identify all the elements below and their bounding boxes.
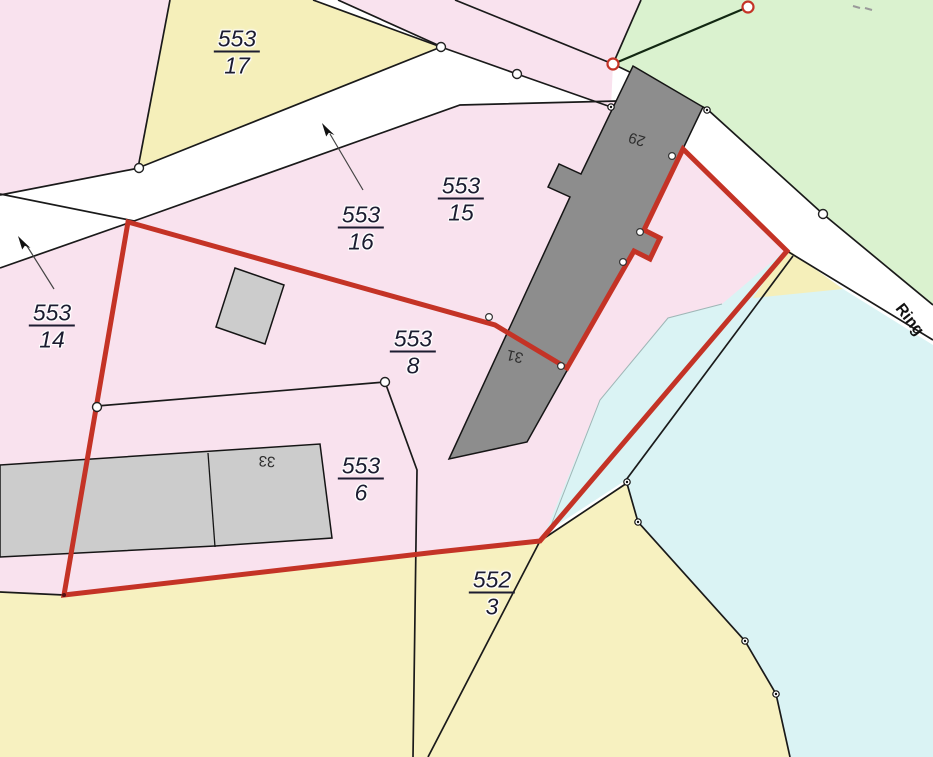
wall-point (620, 259, 627, 266)
parcel-label-553-14: 55314 (29, 301, 75, 352)
parcel-label-553-15: 55315 (438, 174, 484, 225)
parcel-label-552-3: 5523 (469, 568, 515, 619)
parcel-label-553-17-numerator: 553 (214, 27, 260, 53)
corner-point (62, 593, 66, 597)
road-inner-line (0, 194, 134, 221)
boundary-point-center (744, 640, 746, 642)
map-canvas[interactable] (0, 0, 933, 757)
parcel-label-553-6-numerator: 553 (338, 454, 384, 480)
control-point-red (743, 2, 754, 13)
parcel-label-553-16-numerator: 553 (338, 203, 384, 229)
survey-point (381, 378, 390, 387)
parcel-label-553-8-numerator: 553 (390, 327, 436, 353)
wall-point (486, 314, 493, 321)
survey-point (437, 43, 446, 52)
parcel-label-553-8: 5538 (390, 327, 436, 378)
parcel-label-553-15-numerator: 553 (438, 174, 484, 200)
parcel-label-553-17-denominator: 17 (214, 53, 260, 78)
boundary-point-center (775, 693, 777, 695)
map-viewport[interactable]: 55317553165531555314553855365523293133Ri… (0, 0, 933, 757)
parcel-label-553-14-numerator: 553 (29, 301, 75, 327)
parcel-label-553-14-denominator: 14 (29, 327, 75, 352)
boundary-point-center (610, 106, 612, 108)
survey-point (135, 164, 144, 173)
boundary-point-center (706, 109, 708, 111)
parcel-label-553-8-denominator: 8 (390, 353, 436, 378)
parcel-label-553-17: 55317 (214, 27, 260, 78)
parcel-label-552-3-denominator: 3 (469, 594, 515, 619)
survey-point (93, 403, 102, 412)
wall-point (669, 153, 676, 160)
label-arrow-553-16-cursor-icon (322, 123, 335, 137)
control-point-red (608, 59, 619, 70)
parcel-label-552-3-numerator: 552 (469, 568, 515, 594)
boundary-point-center (626, 481, 628, 483)
wall-point (558, 363, 565, 370)
survey-point (513, 70, 522, 79)
survey-point (819, 210, 828, 219)
parcel-label-553-15-denominator: 15 (438, 200, 484, 225)
house-number-33: 33 (258, 452, 276, 470)
parcel-label-553-16: 55316 (338, 203, 384, 254)
parcel-label-553-6-denominator: 6 (338, 480, 384, 505)
parcel-label-553-16-denominator: 16 (338, 229, 384, 254)
parcel-label-553-6: 5536 (338, 454, 384, 505)
wall-point (637, 229, 644, 236)
boundary-point-center (637, 521, 639, 523)
